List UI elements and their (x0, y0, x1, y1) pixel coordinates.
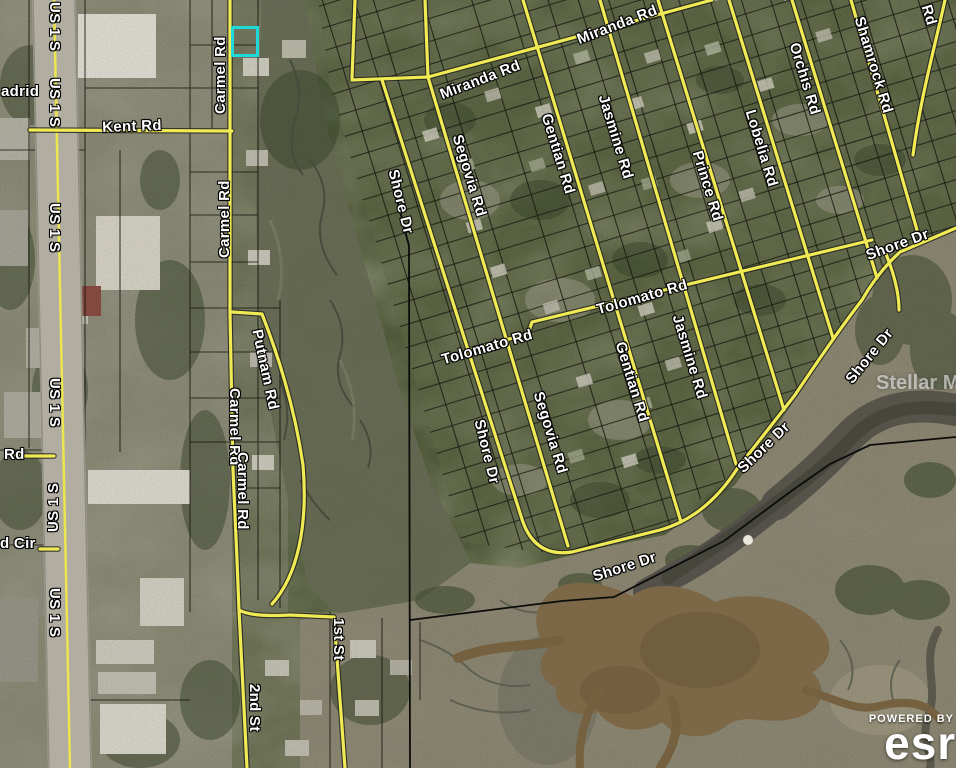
street-label-us1s: US 1 S (47, 588, 62, 637)
map-canvas[interactable]: US 1 S US 1 S US 1 S US 1 S US 1 S US 1 … (0, 0, 956, 768)
stellar-mls-watermark: Stellar MLS (876, 372, 956, 395)
esri-attribution: POWERED BY esri (869, 713, 956, 762)
street-label-d-cir: d Cir (0, 536, 36, 551)
street-label-carmel-rd: Carmel Rd (235, 452, 250, 530)
street-label-kent-rd: Kent Rd (102, 118, 162, 135)
esri-logo-text: esri (869, 725, 956, 762)
street-label-2nd-st: 2nd St (247, 684, 262, 732)
street-label-us1s: US 1 S (47, 378, 62, 427)
street-label-madrid: adrid (1, 84, 39, 99)
street-label-us1s: US 1 S (47, 203, 62, 252)
street-label-1st-st: 1st St (331, 618, 346, 661)
street-label-rd: Rd (4, 447, 25, 462)
selected-parcel-highlight[interactable] (231, 26, 259, 57)
street-label-carmel-rd: Carmel Rd (217, 180, 232, 258)
street-label-us1s: US 1 S (47, 2, 62, 51)
street-label-carmel-rd: Carmel Rd (213, 36, 228, 114)
street-label-us1s: US 1 S (46, 483, 61, 532)
street-label-us1s: US 1 S (47, 78, 62, 127)
